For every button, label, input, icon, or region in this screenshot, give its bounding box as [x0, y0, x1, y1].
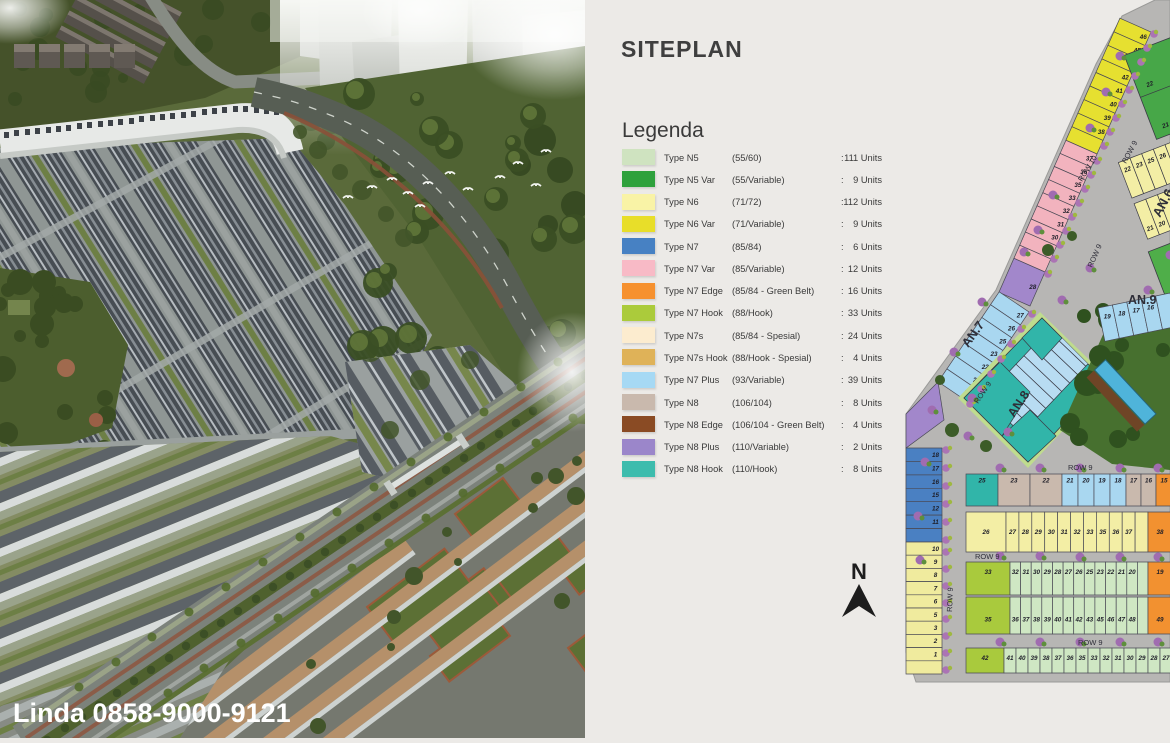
svg-text:29: 29 — [1137, 655, 1146, 662]
svg-text:27: 27 — [1161, 655, 1170, 662]
svg-text:18: 18 — [1114, 478, 1122, 485]
svg-text:40: 40 — [1017, 655, 1026, 662]
svg-text:41: 41 — [1005, 655, 1014, 662]
svg-text:17: 17 — [932, 465, 940, 472]
svg-text:35: 35 — [1078, 655, 1086, 662]
svg-text:49: 49 — [1155, 616, 1164, 623]
svg-text:33: 33 — [1086, 529, 1094, 536]
svg-text:AN.9: AN.9 — [1128, 293, 1157, 307]
svg-text:15: 15 — [932, 492, 940, 499]
svg-text:9: 9 — [934, 559, 938, 566]
svg-text:Linda 0858-9000-9121: Linda 0858-9000-9121 — [13, 698, 291, 728]
svg-text:46: 46 — [1139, 34, 1148, 41]
svg-text:12: 12 — [932, 506, 940, 513]
svg-text:38: 38 — [1098, 129, 1106, 136]
svg-text:27: 27 — [1064, 569, 1073, 576]
svg-text:7: 7 — [934, 585, 938, 592]
svg-text:16: 16 — [1145, 478, 1153, 485]
svg-text:41: 41 — [1064, 616, 1073, 623]
svg-text:29: 29 — [1034, 529, 1043, 536]
svg-text:25: 25 — [1085, 569, 1094, 576]
svg-text:35: 35 — [984, 616, 992, 623]
svg-text:40: 40 — [1053, 616, 1062, 623]
svg-text:45: 45 — [1096, 616, 1105, 623]
svg-text:38: 38 — [1156, 529, 1164, 536]
svg-text:21: 21 — [1117, 569, 1126, 576]
svg-text:32: 32 — [1063, 208, 1071, 215]
svg-text:26: 26 — [1007, 326, 1016, 333]
svg-text:26: 26 — [981, 529, 990, 536]
svg-text:18: 18 — [1118, 311, 1126, 318]
svg-text:42: 42 — [1121, 75, 1130, 82]
svg-text:32: 32 — [1073, 529, 1081, 536]
svg-text:16: 16 — [932, 479, 940, 486]
svg-text:ROW 9: ROW 9 — [1068, 463, 1093, 472]
svg-text:37: 37 — [1054, 655, 1062, 662]
svg-text:30: 30 — [1126, 655, 1134, 662]
svg-text:28: 28 — [1053, 569, 1062, 576]
svg-text:39: 39 — [1030, 655, 1038, 662]
svg-text:31: 31 — [1114, 655, 1122, 662]
svg-text:42: 42 — [980, 655, 989, 662]
svg-text:47: 47 — [1117, 616, 1126, 623]
svg-text:6: 6 — [934, 599, 938, 606]
svg-text:10: 10 — [932, 546, 940, 553]
svg-text:32: 32 — [1102, 655, 1110, 662]
svg-text:41: 41 — [1115, 88, 1124, 95]
svg-text:19: 19 — [1104, 314, 1112, 321]
svg-text:1: 1 — [934, 651, 938, 658]
svg-text:5: 5 — [934, 612, 938, 619]
svg-text:27: 27 — [1008, 529, 1017, 536]
svg-text:30: 30 — [1051, 234, 1059, 241]
svg-text:18: 18 — [932, 452, 940, 459]
svg-text:26: 26 — [1074, 569, 1083, 576]
svg-text:36: 36 — [1112, 529, 1120, 536]
svg-text:ROW 9: ROW 9 — [975, 552, 1000, 561]
svg-text:22: 22 — [1041, 478, 1050, 485]
svg-text:29: 29 — [1043, 569, 1052, 576]
svg-text:33: 33 — [1069, 195, 1077, 202]
svg-text:2: 2 — [933, 638, 938, 645]
svg-text:37: 37 — [1125, 529, 1133, 536]
svg-text:17: 17 — [1130, 478, 1138, 485]
svg-text:28: 28 — [1021, 529, 1030, 536]
svg-text:39: 39 — [1044, 616, 1052, 623]
svg-text:30: 30 — [1033, 569, 1041, 576]
svg-text:23: 23 — [1096, 569, 1105, 576]
svg-text:40: 40 — [1109, 102, 1118, 109]
svg-text:23: 23 — [989, 351, 998, 358]
svg-text:36: 36 — [1012, 616, 1020, 623]
svg-text:ROW 9: ROW 9 — [1078, 638, 1103, 647]
svg-text:38: 38 — [1042, 655, 1050, 662]
svg-text:28: 28 — [1149, 655, 1158, 662]
svg-text:31: 31 — [1022, 569, 1030, 576]
svg-text:20: 20 — [1081, 478, 1090, 485]
svg-text:46: 46 — [1106, 616, 1115, 623]
svg-text:39: 39 — [1104, 115, 1112, 122]
svg-text:33: 33 — [1090, 655, 1098, 662]
svg-text:ROW 9: ROW 9 — [945, 587, 955, 612]
svg-text:19: 19 — [1156, 569, 1164, 576]
svg-text:35: 35 — [1074, 182, 1082, 189]
svg-text:28: 28 — [1028, 284, 1037, 291]
svg-text:27: 27 — [1016, 313, 1025, 320]
svg-text:37: 37 — [1022, 616, 1030, 623]
svg-text:48: 48 — [1128, 616, 1137, 623]
svg-text:17: 17 — [1133, 308, 1141, 315]
svg-text:42: 42 — [1074, 616, 1083, 623]
svg-text:15: 15 — [1160, 478, 1168, 485]
svg-text:31: 31 — [1061, 529, 1069, 536]
svg-text:23: 23 — [1009, 478, 1018, 485]
svg-text:19: 19 — [1098, 478, 1106, 485]
svg-text:8: 8 — [934, 572, 938, 579]
svg-text:32: 32 — [1012, 569, 1020, 576]
svg-text:31: 31 — [1057, 221, 1065, 228]
svg-text:22: 22 — [1106, 569, 1115, 576]
svg-text:33: 33 — [984, 569, 992, 576]
svg-text:3: 3 — [934, 625, 938, 632]
svg-text:20: 20 — [1128, 569, 1137, 576]
svg-text:36: 36 — [1066, 655, 1074, 662]
svg-text:21: 21 — [1065, 478, 1074, 485]
svg-text:25: 25 — [977, 478, 986, 485]
svg-text:11: 11 — [932, 519, 939, 526]
svg-text:38: 38 — [1033, 616, 1041, 623]
svg-text:35: 35 — [1099, 529, 1107, 536]
svg-text:43: 43 — [1085, 616, 1094, 623]
svg-text:30: 30 — [1048, 529, 1056, 536]
svg-text:25: 25 — [998, 338, 1007, 345]
